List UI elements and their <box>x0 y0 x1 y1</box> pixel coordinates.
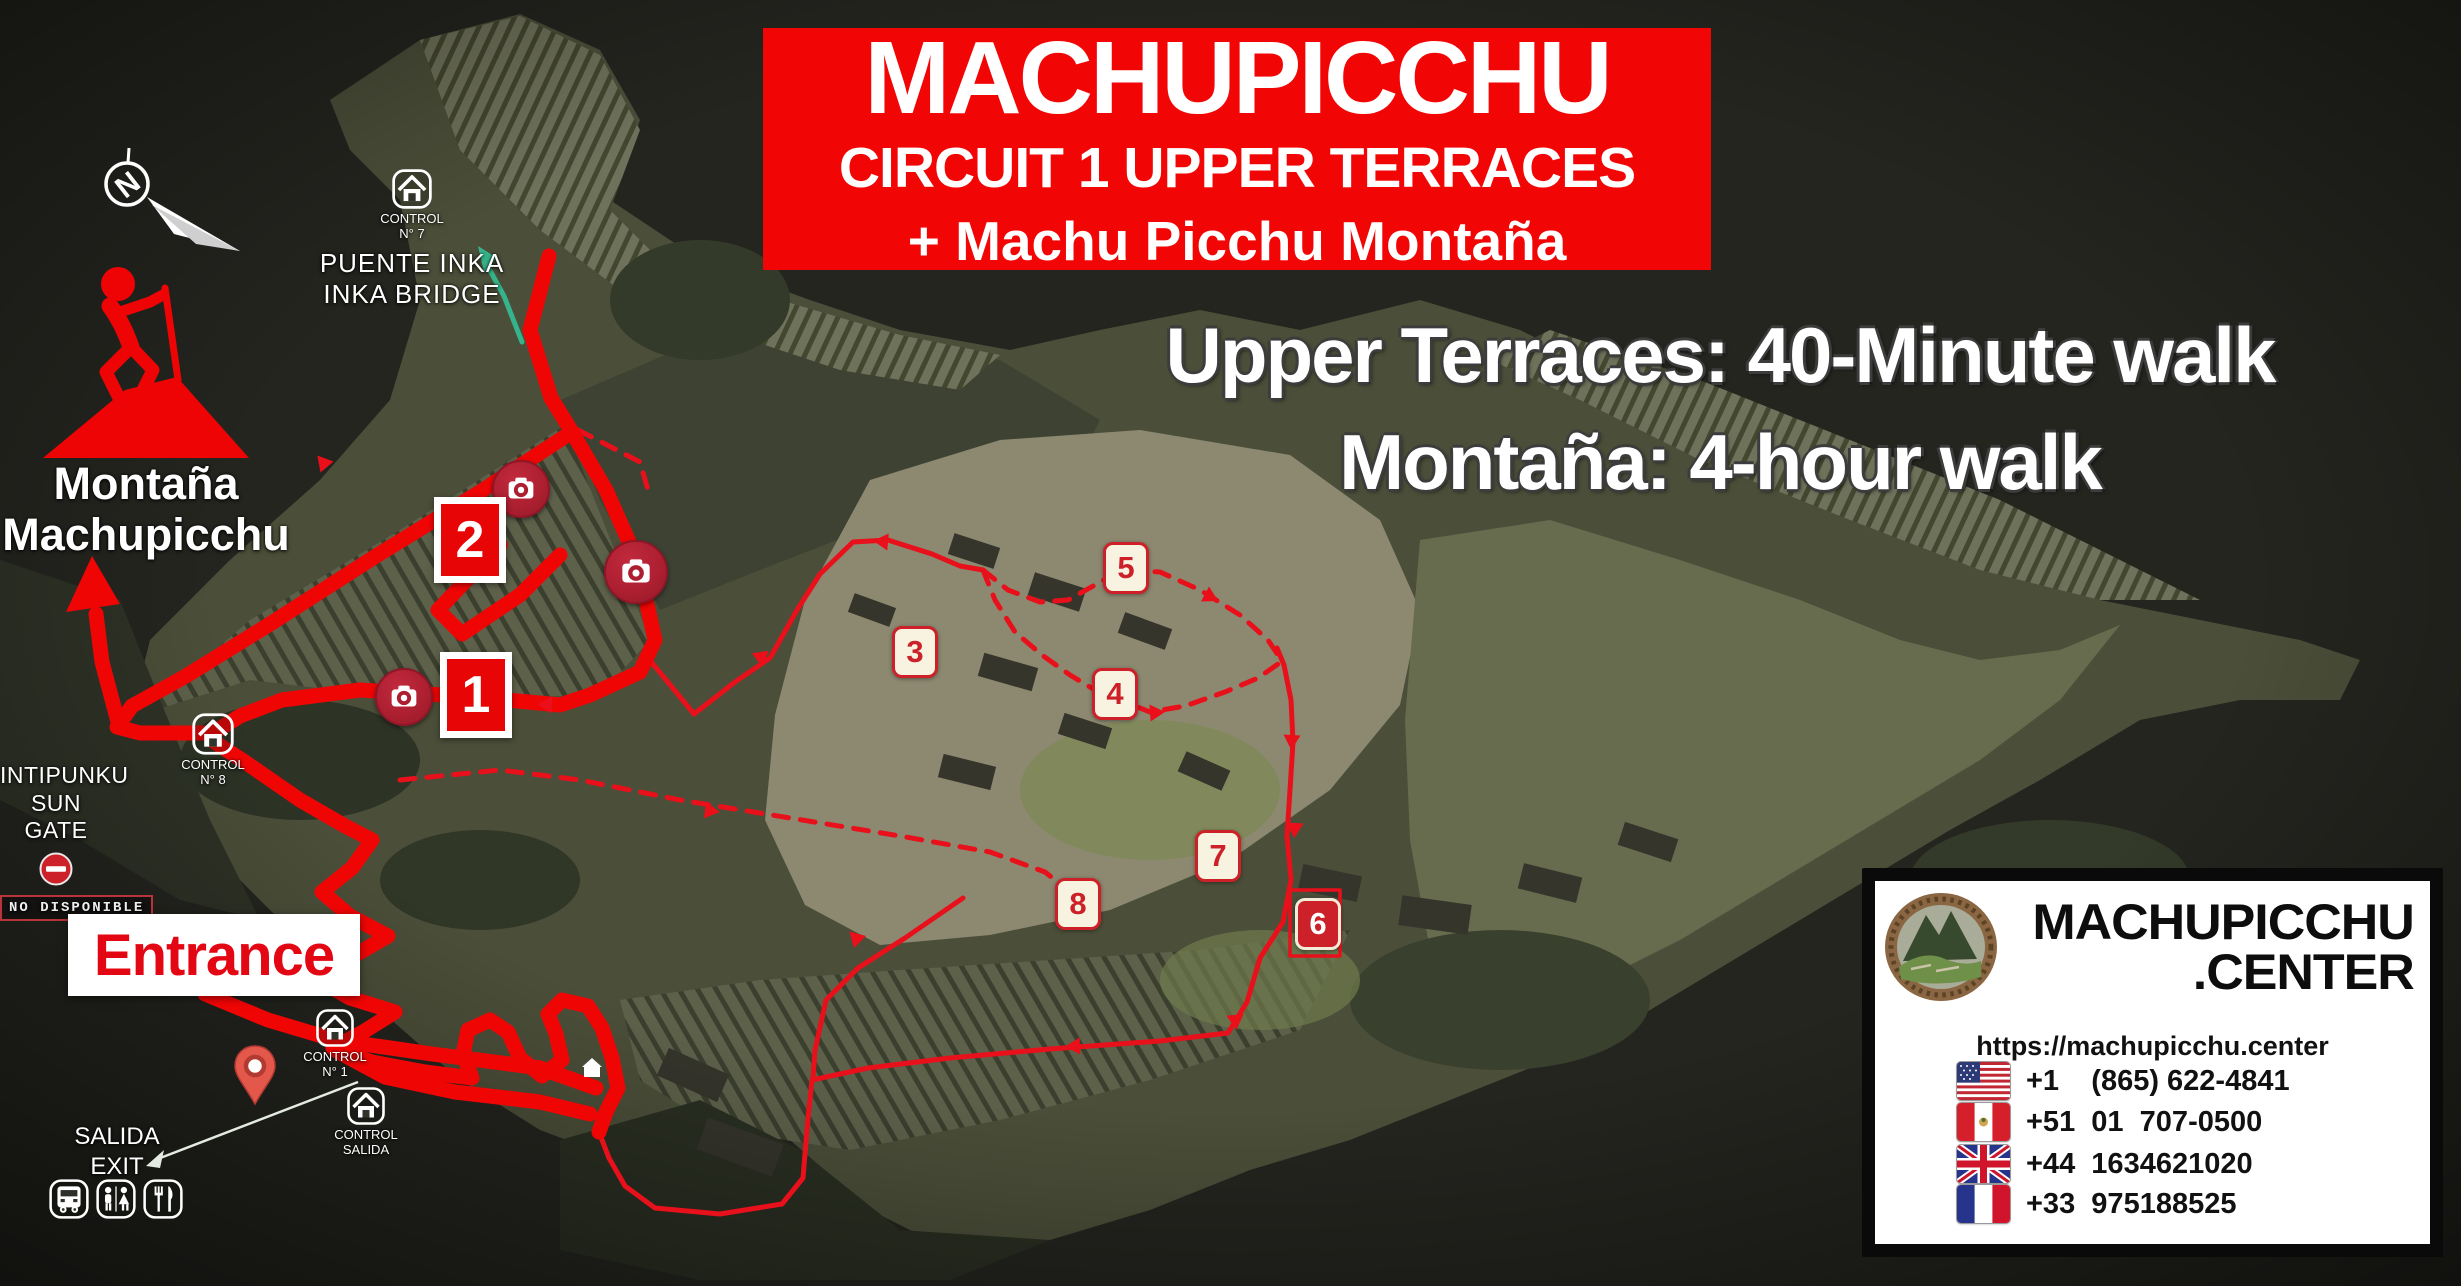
map-subtitle: CIRCUIT 1 UPPER TERRACES <box>839 135 1635 201</box>
control-7-house-icon <box>391 168 433 210</box>
control-salida-caption: CONTROL SALIDA <box>320 1128 412 1158</box>
control-8-block: CONTROL N° 8 <box>168 712 258 788</box>
no-entry-icon <box>38 851 74 887</box>
bus-icon <box>48 1178 90 1220</box>
entrance-callout: Entrance <box>68 914 360 996</box>
phone-row-usa: +1 (865) 622-4841 <box>1957 1062 2290 1100</box>
title-banner: MACHUPICCHU CIRCUIT 1 UPPER TERRACES + M… <box>763 28 1711 270</box>
waypoint-5-badge: 5 <box>1103 542 1149 594</box>
sun-gate-label-block: INTIPUNKU SUN GATE NO DISPONIBLE <box>0 762 112 921</box>
machu-picchu-circuit-map: N MACHUPICCHU CIRCUIT 1 UPPER TERRACES +… <box>0 0 2461 1286</box>
inka-bridge-label-block: CONTROL N° 7 PUENTE INKA INKA BRIDGE <box>312 168 512 309</box>
usa-flag-icon <box>1957 1062 2010 1100</box>
waypoint-3-badge: 3 <box>892 626 938 678</box>
brand-name: MACHUPICCHU .CENTER <box>2047 897 2414 997</box>
montana-peak-label: Montaña Machupicchu <box>0 458 292 561</box>
peru-flag-icon <box>1957 1103 2010 1141</box>
website-url: https://machupicchu.center <box>1875 1031 2430 1062</box>
machupicchu-center-logo <box>1881 889 2001 1005</box>
phone-row-uk: +44 1634621020 <box>1957 1145 2253 1183</box>
phone-france: +33 975188525 <box>2026 1188 2236 1221</box>
walk-duration-info: Upper Terraces: 40-Minute walk Montaña: … <box>1020 310 2420 508</box>
waypoint-1-badge: 1 <box>440 652 512 738</box>
restrooms-icon <box>95 1178 137 1220</box>
map-title: MACHUPICCHU <box>864 25 1609 130</box>
waypoint-7-badge: 7 <box>1195 830 1241 882</box>
control-salida-block: CONTROL SALIDA <box>320 1086 412 1158</box>
control-8-house-icon <box>191 712 235 756</box>
map-subtitle-2: + Machu Picchu Montaña <box>908 209 1567 273</box>
contact-info-box: MACHUPICCHU .CENTER https://machupicchu.… <box>1862 868 2443 1257</box>
waypoint-6-badge: 6 <box>1295 898 1341 950</box>
waypoint-8-badge: 8 <box>1055 878 1101 930</box>
upper-terraces-duration: Upper Terraces: 40-Minute walk <box>1020 310 2420 401</box>
phone-usa: +1 (865) 622-4841 <box>2026 1065 2290 1098</box>
control-7-caption: CONTROL N° 7 <box>312 212 512 242</box>
entrance-label: Entrance <box>94 922 334 989</box>
inka-bridge-name: PUENTE INKA INKA BRIDGE <box>312 248 512 309</box>
montana-duration: Montaña: 4-hour walk <box>1020 417 2420 508</box>
phone-row-peru: +51 01 707-0500 <box>1957 1103 2262 1141</box>
control-salida-house-icon <box>346 1086 386 1126</box>
facilities-row <box>48 1178 184 1220</box>
phone-row-france: +33 975188525 <box>1957 1185 2236 1223</box>
control-1-block: CONTROL N° 1 <box>290 1008 380 1080</box>
france-flag-icon <box>1957 1185 2010 1223</box>
exit-label-block: SALIDA EXIT <box>58 1122 176 1182</box>
control-1-house-icon <box>315 1008 355 1048</box>
phone-peru: +51 01 707-0500 <box>2026 1106 2262 1139</box>
waypoint-2-badge: 2 <box>434 497 506 583</box>
control-1-caption: CONTROL N° 1 <box>290 1050 380 1080</box>
sun-gate-name: INTIPUNKU SUN GATE <box>0 762 112 845</box>
uk-flag-icon <box>1957 1145 2010 1183</box>
restaurant-icon <box>142 1178 184 1220</box>
photo-spot-camera-icon <box>604 540 668 604</box>
phone-uk: +44 1634621020 <box>2026 1148 2253 1181</box>
control-8-caption: CONTROL N° 8 <box>168 758 258 788</box>
waypoint-4-badge: 4 <box>1092 668 1138 720</box>
photo-spot-camera-icon <box>375 668 433 726</box>
